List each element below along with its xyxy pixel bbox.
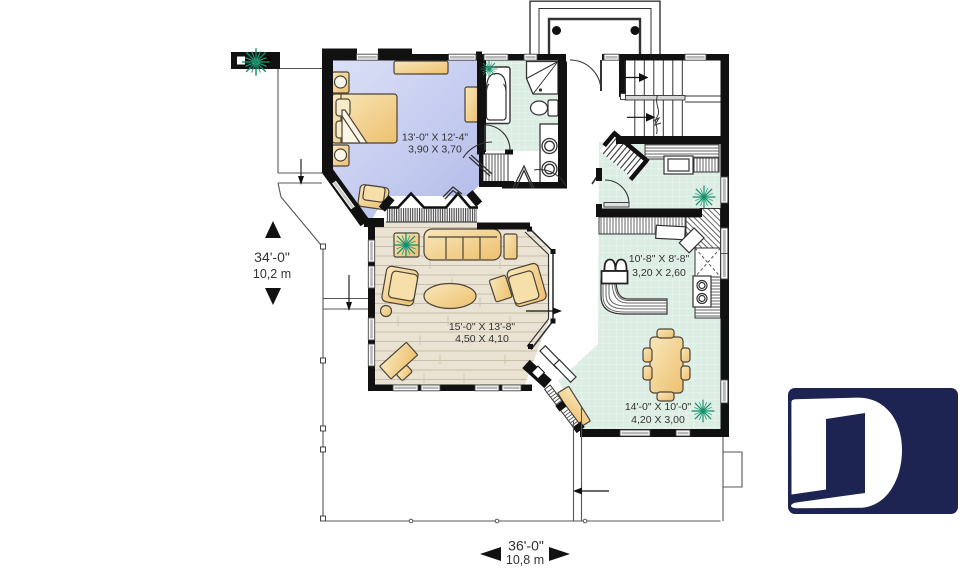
svg-text:36'-0": 36'-0" [508, 538, 544, 554]
svg-text:3,20 X 2,60: 3,20 X 2,60 [632, 267, 686, 279]
svg-text:10,8 m: 10,8 m [506, 553, 544, 567]
svg-text:10'-8" X 8'-8": 10'-8" X 8'-8" [629, 253, 690, 265]
svg-text:13'-0" X 12'-4": 13'-0" X 12'-4" [402, 132, 469, 144]
svg-text:3,90 X 3,70: 3,90 X 3,70 [408, 144, 462, 156]
svg-text:10,2 m: 10,2 m [253, 267, 291, 281]
svg-text:14'-0" X 10'-0": 14'-0" X 10'-0" [625, 401, 692, 413]
svg-text:4,20 X 3,00: 4,20 X 3,00 [631, 414, 685, 426]
svg-text:15'-0" X 13'-8": 15'-0" X 13'-8" [449, 321, 516, 333]
svg-text:4,50 X 4,10: 4,50 X 4,10 [455, 333, 509, 345]
svg-text:34'-0": 34'-0" [254, 249, 290, 265]
